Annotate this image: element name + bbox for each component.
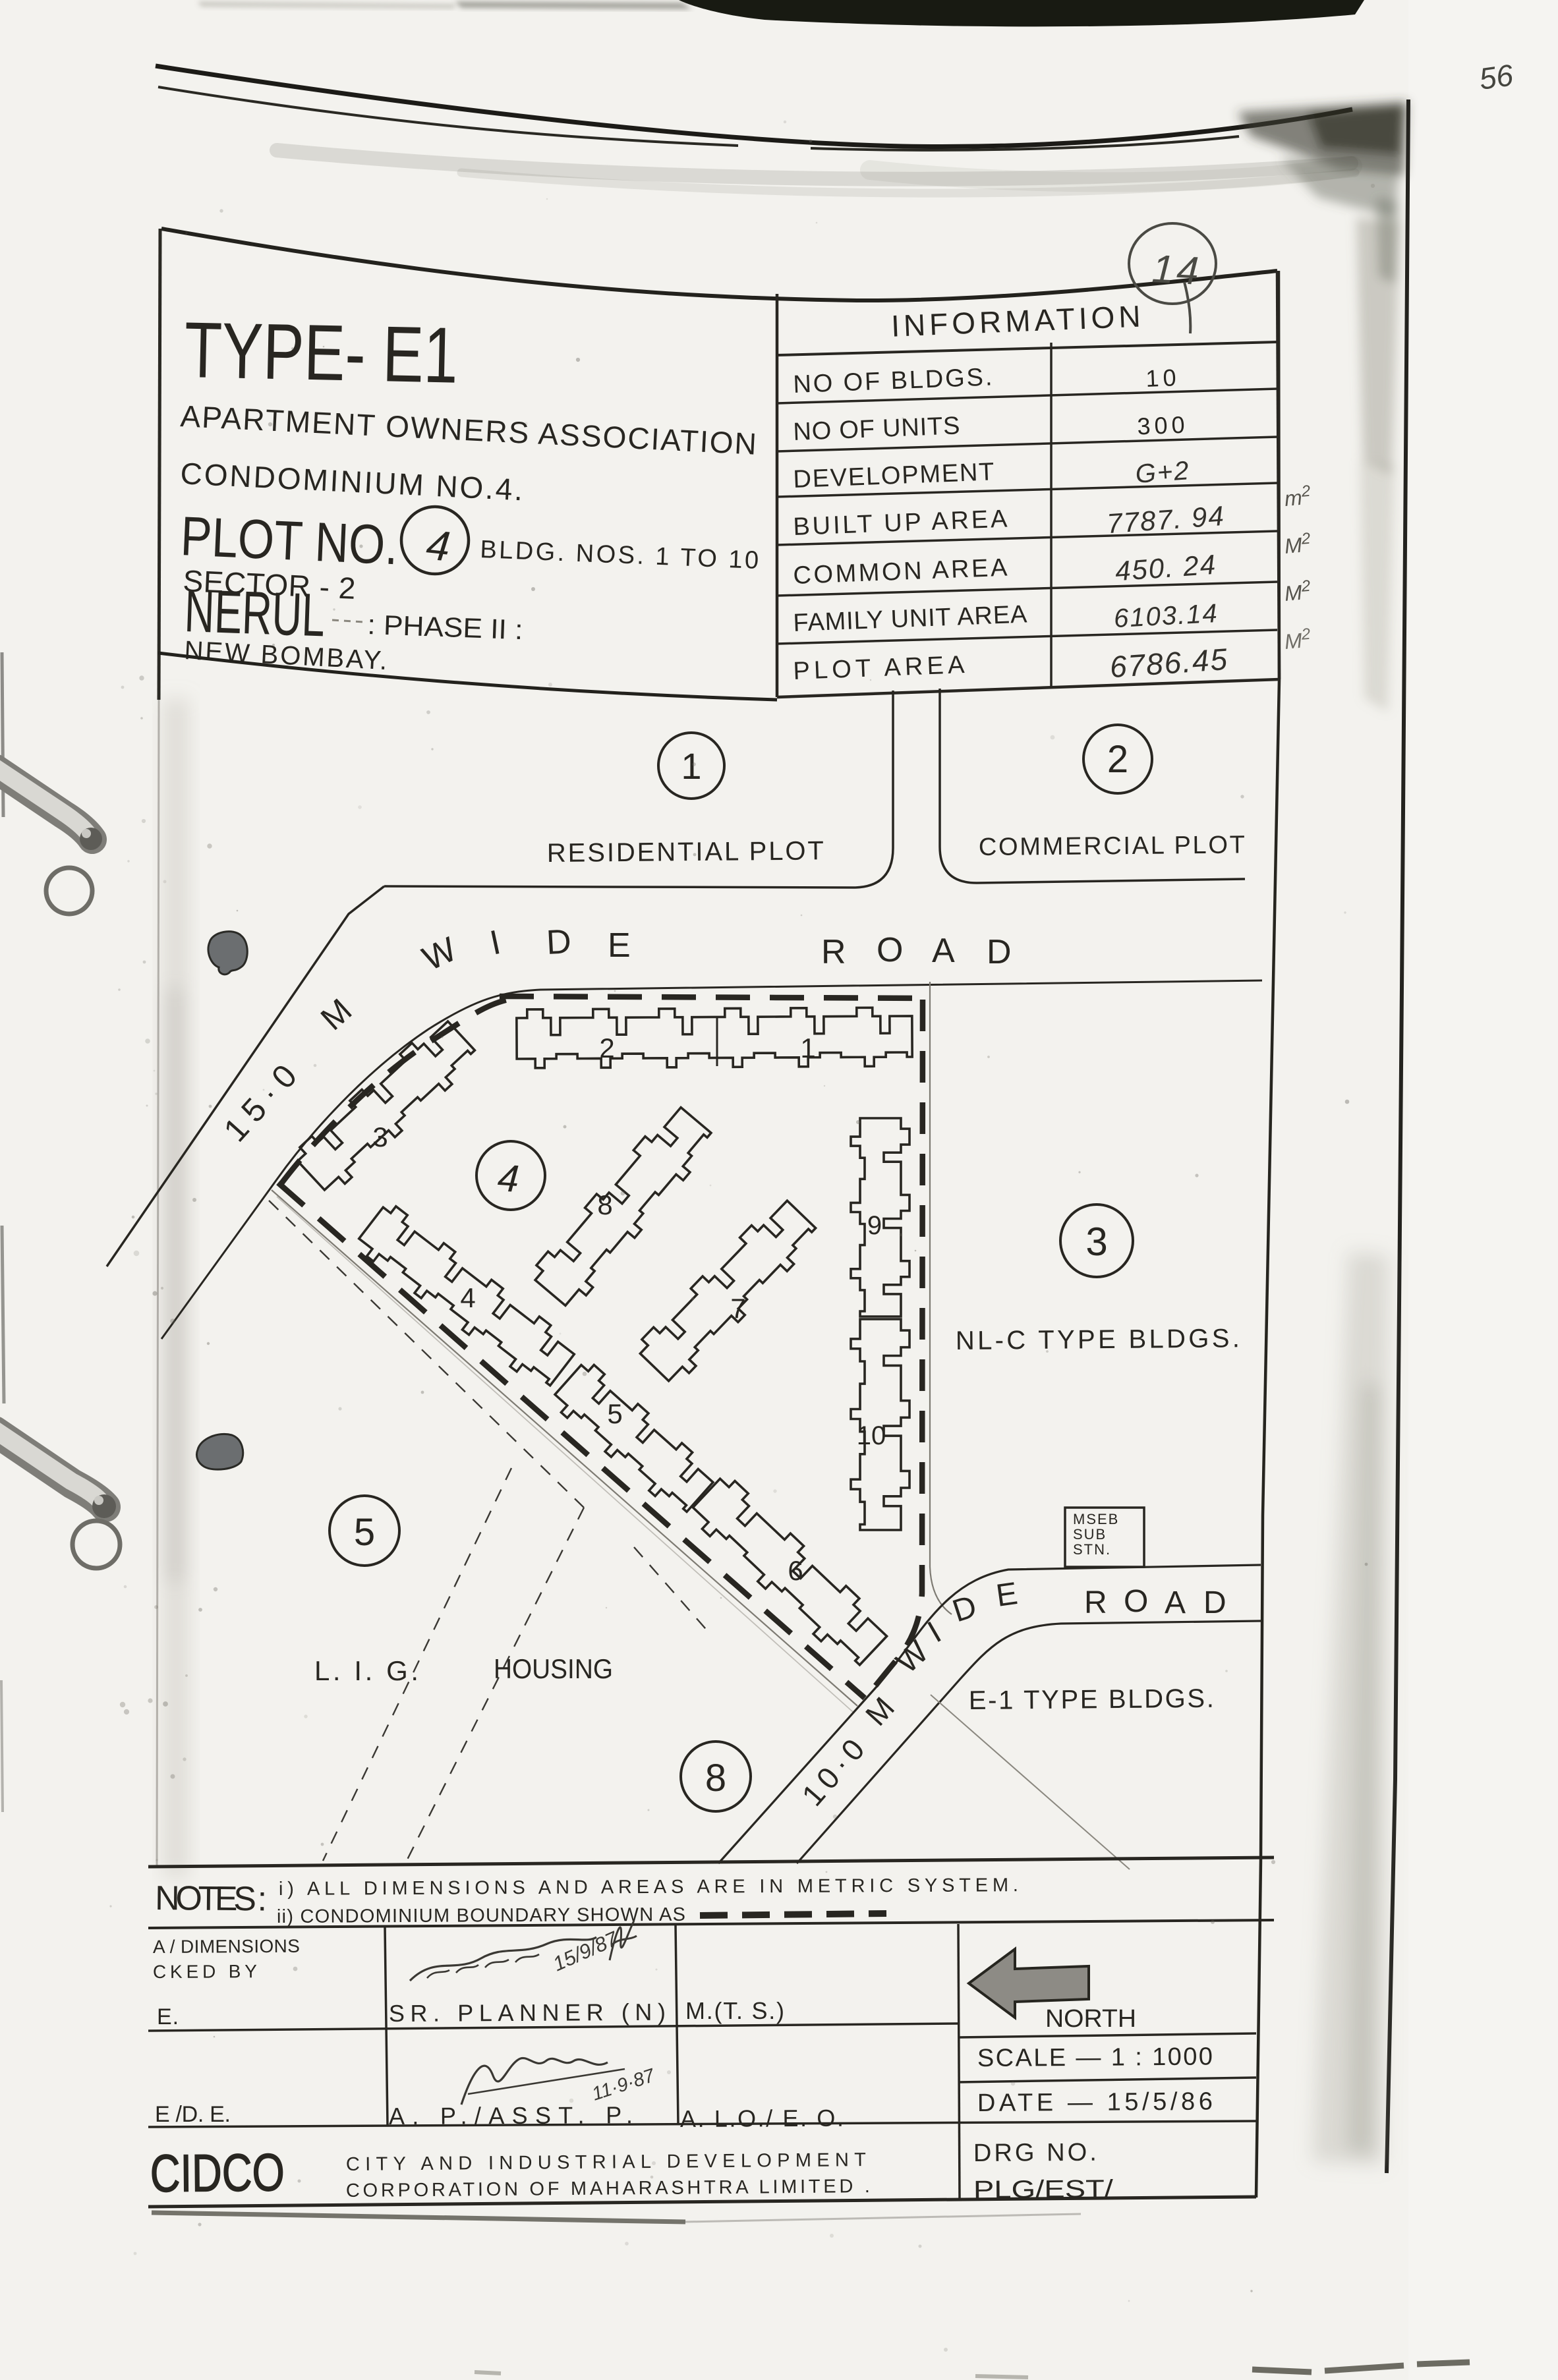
svg-text:8: 8 [705,1757,726,1799]
svg-text:HOUSING: HOUSING [494,1653,613,1684]
svg-text:O: O [877,931,903,969]
svg-text:A: A [932,932,955,970]
svg-text:4: 4 [496,1156,521,1201]
svg-text:A / DIMENSIONS: A / DIMENSIONS [153,1936,300,1957]
svg-text:14: 14 [1151,246,1202,293]
svg-text:NL-C TYPE BLDGS.: NL-C TYPE BLDGS. [956,1324,1240,1355]
svg-text:4: 4 [424,521,453,570]
svg-text:NORTH: NORTH [1045,2005,1136,2033]
svg-text:R: R [821,933,846,971]
svg-text:1: 1 [800,1033,815,1063]
svg-text:3: 3 [1085,1220,1107,1264]
svg-text:10: 10 [1145,364,1181,392]
svg-text:5: 5 [354,1511,375,1554]
svg-text:D: D [1203,1585,1226,1620]
svg-text:MSEB: MSEB [1073,1511,1119,1527]
svg-text:1: 1 [681,745,701,787]
svg-text:E /D. E.: E /D. E. [155,2102,231,2127]
svg-text:D: D [546,922,573,962]
svg-text:2: 2 [599,1033,614,1063]
svg-text:: PHASE II :: : PHASE II : [367,609,523,645]
svg-text:5: 5 [607,1398,622,1429]
svg-text:M.(T. S.): M.(T. S.) [685,1997,784,2024]
svg-text:6: 6 [788,1555,803,1586]
svg-text:6103.14: 6103.14 [1113,599,1219,633]
svg-text:NOTES :: NOTES : [155,1879,267,1918]
svg-text:3: 3 [372,1121,388,1152]
svg-text:7: 7 [730,1293,745,1324]
svg-text:D: D [987,933,1012,971]
svg-text:A: A [1165,1585,1186,1620]
svg-text:8: 8 [597,1189,612,1220]
svg-text:4: 4 [460,1282,475,1313]
svg-text:RESIDENTIAL PLOT: RESIDENTIAL PLOT [547,836,824,868]
svg-text:E.: E. [157,2004,179,2029]
svg-text:9: 9 [867,1211,882,1240]
svg-text:NERUL: NERUL [183,577,326,649]
svg-text:STN.: STN. [1073,1541,1111,1558]
svg-text:10: 10 [857,1421,886,1450]
svg-text:E-1 TYPE BLDGS.: E-1 TYPE BLDGS. [969,1684,1214,1715]
svg-text:56: 56 [1477,57,1515,96]
svg-text:O: O [1124,1584,1148,1619]
svg-text:300: 300 [1137,411,1190,440]
svg-text:TYPE- E1: TYPE- E1 [183,306,459,400]
svg-text:R: R [1084,1585,1107,1620]
svg-text:2: 2 [1107,738,1128,781]
svg-text:SCALE — 1 : 1000: SCALE — 1 : 1000 [977,2043,1213,2072]
svg-text:E: E [608,926,631,965]
svg-text:PLG/EST/: PLG/EST/ [973,2176,1114,2204]
svg-text:SUB: SUB [1073,1526,1107,1543]
svg-text:G+2: G+2 [1134,456,1191,489]
svg-text:CIDCO: CIDCO [150,2143,285,2203]
